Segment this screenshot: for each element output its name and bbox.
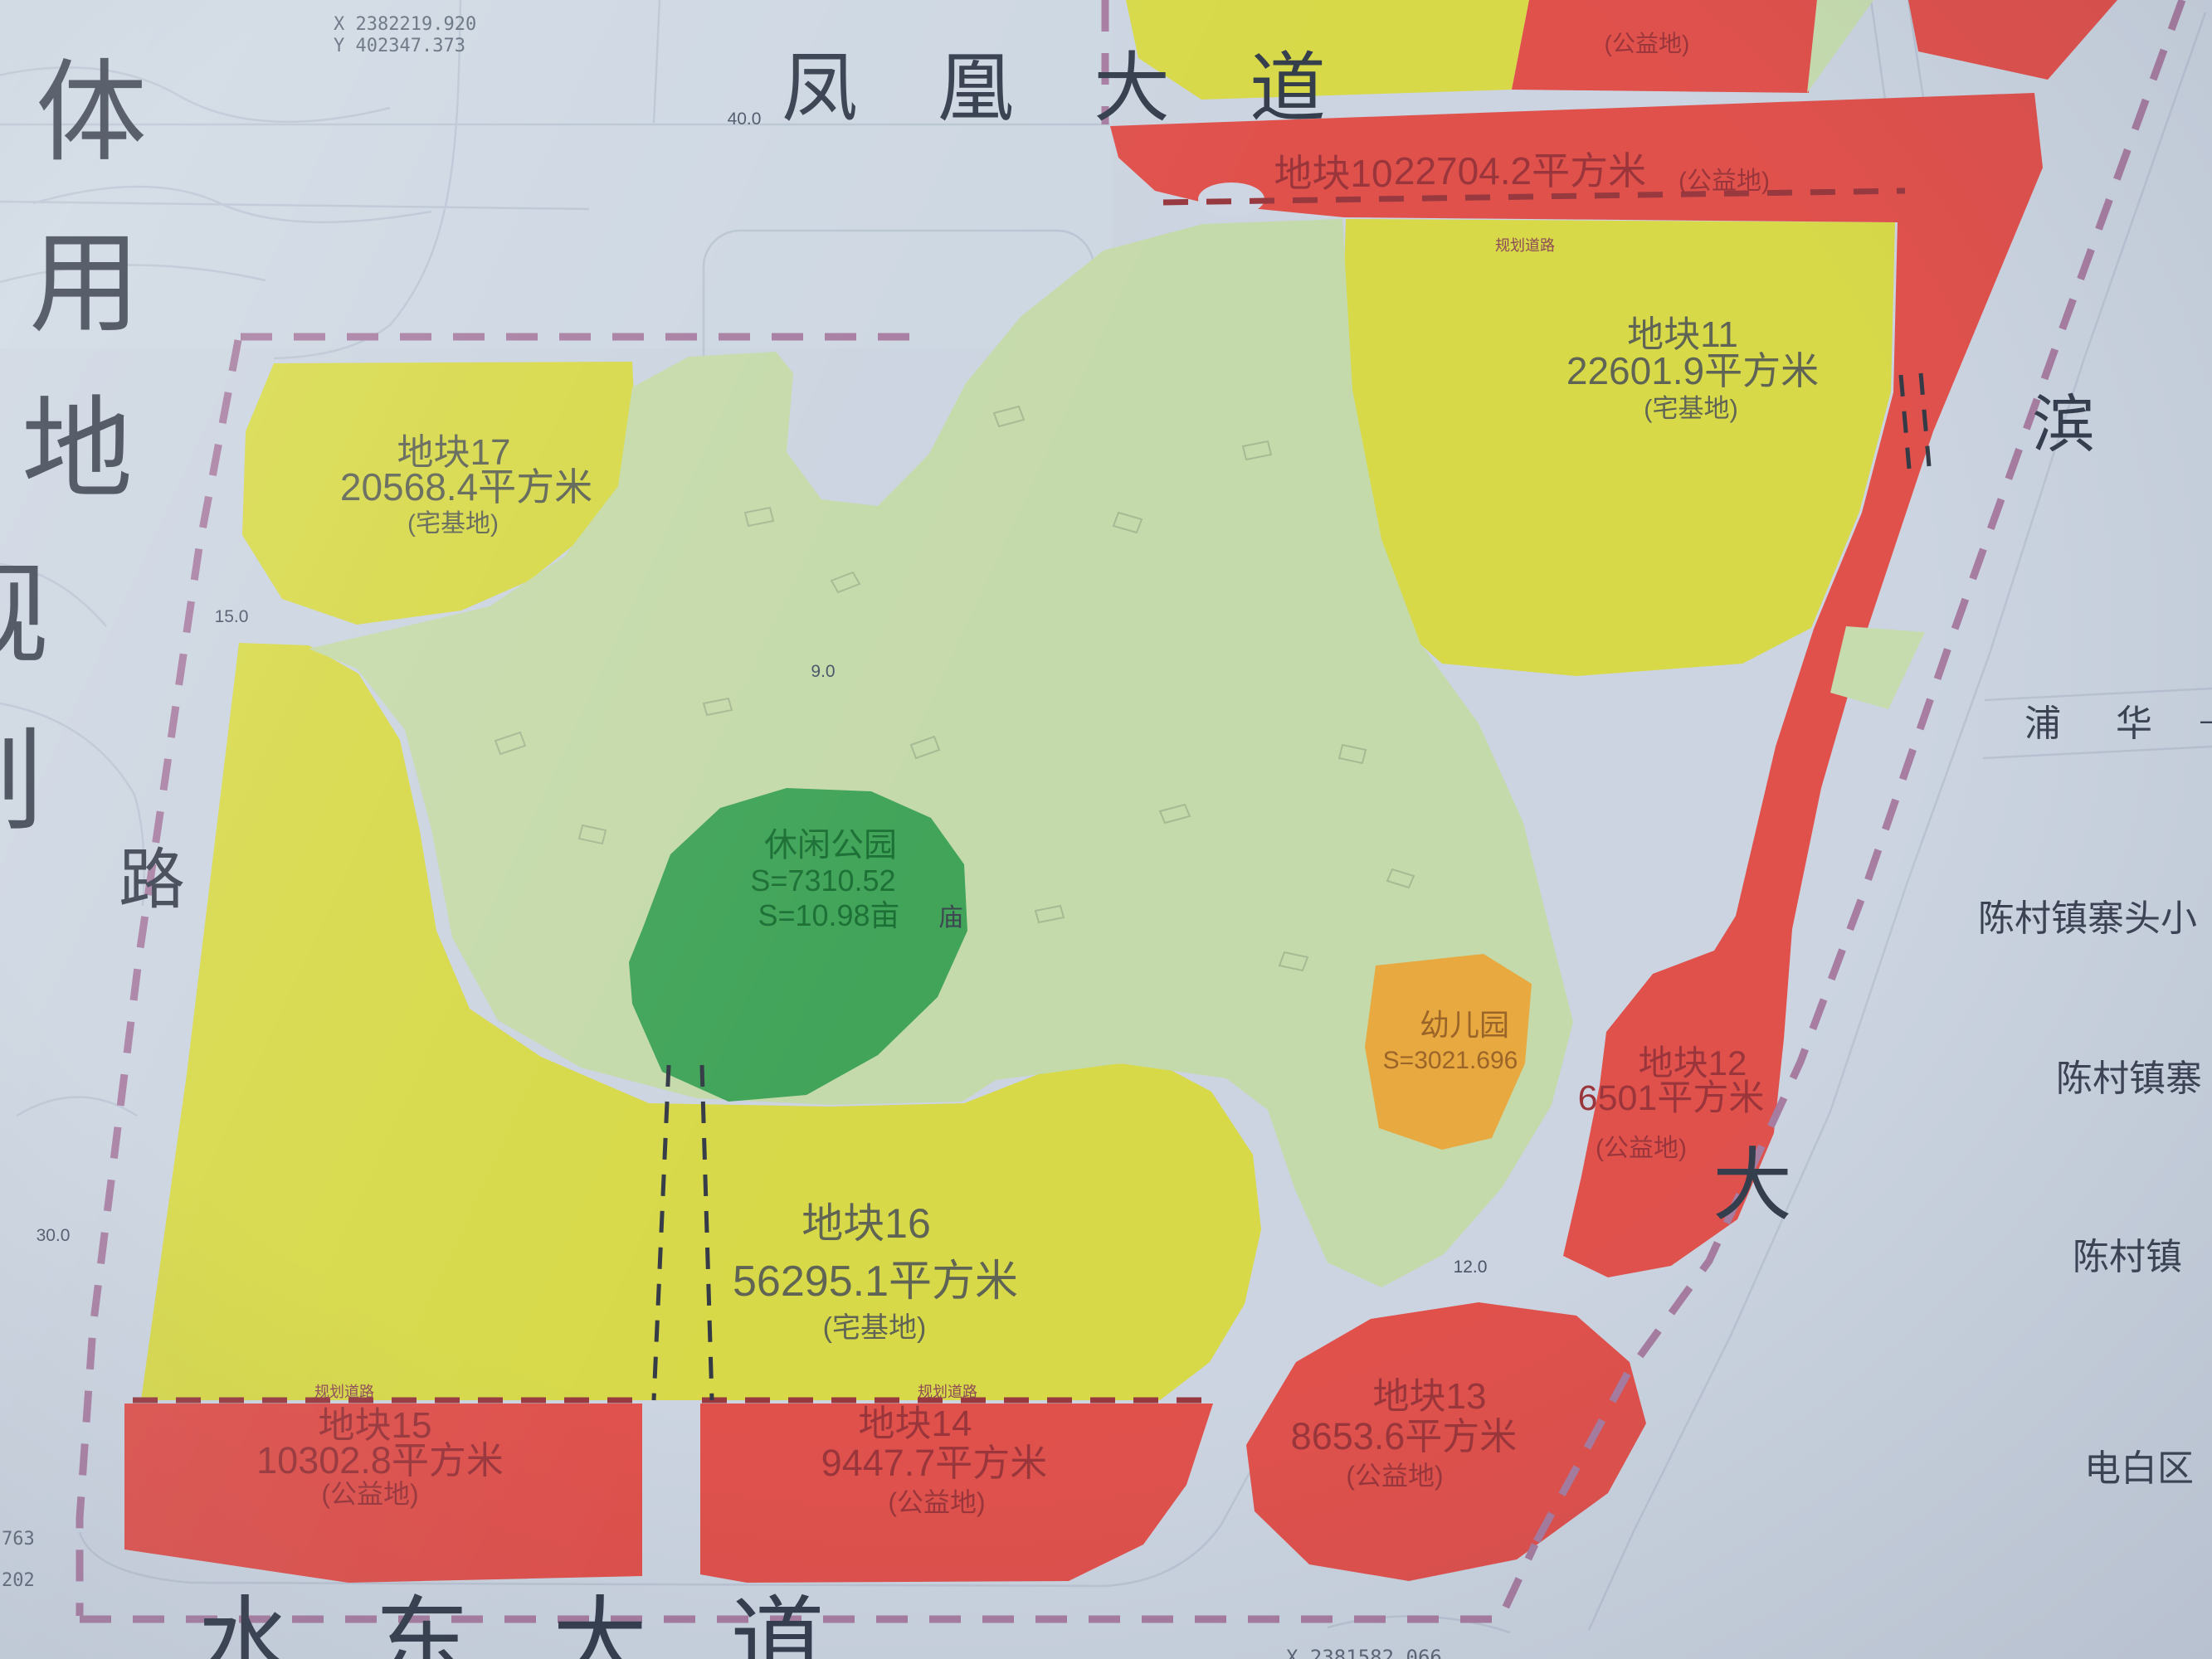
place-label: 陈村镇 [2073,1237,2182,1277]
parcel-type: (公益地) [1678,168,1770,195]
parcel-type: (公益地) [321,1479,418,1509]
title-char: 体 [36,51,147,175]
parcel-area: 10302.8平方米 [256,1439,504,1481]
planned-road-caption: 规划道路 [314,1384,374,1400]
parcel-type: (宅基地) [407,510,499,538]
park-area-m2: S=7310.52 [750,864,895,898]
parcel-type: (公益地) [1596,1135,1687,1162]
park-name: 休闲公园 [764,827,897,864]
puhua-road-char: 浦 [2024,703,2061,744]
parcel-type: (宅基地) [1644,394,1738,423]
parcel-name: 地块16 [801,1200,931,1247]
coordinate-label-bottom: X 2381582.066 [1286,1646,1442,1659]
dimension-label: 40.0 [728,109,762,129]
puhua-road-dash: — [2200,703,2212,737]
coordinate-label-x: X 2382219.920 [334,14,476,35]
title-char: 用 [29,222,140,346]
parcel-11-region [1342,219,1895,676]
parcel-area: 20568.4平方米 [340,465,592,508]
parcel-area: 6501平方米 [1578,1078,1765,1118]
coordinate-partial: 202 [2,1570,35,1591]
parcel-area: 56295.1平方米 [733,1258,1018,1306]
kindergarten-area: S=3021.696 [1383,1047,1518,1074]
parcel-area: 22704.2平方米 [1394,149,1646,192]
kindergarten-name: 幼儿园 [1420,1008,1509,1042]
parcel-area: 9447.7平方米 [821,1442,1048,1484]
dimension-label: 30.0 [37,1226,71,1245]
planning-map-photo: 体 用 地 规 划 路 凤凰大道 水东大道 滨 大 浦 华 — X 238221… [0,0,2212,1659]
dimension-label: 15.0 [215,607,249,626]
coordinate-partial: 763 [2,1529,35,1550]
parcel-type: (公益地) [888,1487,985,1517]
top-road-name: 凤凰大道 [782,46,1406,131]
park-area-mu: S=10.98亩 [758,898,899,932]
parcel-type: (宅基地) [823,1312,927,1344]
parcel-area: 8653.6平方米 [1291,1415,1518,1457]
parcel-name: 地块14 [859,1404,972,1444]
title-char: 划 [0,720,44,844]
title-char: 地 [22,388,133,512]
left-road-name-char: 路 [119,843,185,917]
temple-char: 庙 [938,904,963,932]
title-char: 规 [0,554,49,678]
land-use-map: 体 用 地 规 划 路 凤凰大道 水东大道 滨 大 浦 华 — X 238221… [0,0,2212,1659]
place-label: 陈村镇寨 [2056,1058,2202,1099]
puhua-road-char: 华 [2116,703,2152,744]
coordinate-label-y: Y 402347.373 [334,36,465,56]
bottom-road-name: 水东大道 [197,1589,908,1659]
planned-road-caption: 规划道路 [1495,237,1555,254]
planned-road-caption: 规划道路 [918,1384,977,1400]
parcel-type: (公益地) [1346,1461,1443,1491]
parcel-name: 地块13 [1373,1376,1487,1417]
dimension-label: 12.0 [1454,1258,1488,1277]
right-road-name-char: 大 [1713,1141,1792,1230]
park-label: 休闲公园 S=7310.52 S=10.98亩 [750,827,899,932]
parcel-name: 地块12 [1639,1044,1747,1082]
north-parcel-type: (公益地) [1605,31,1690,56]
parcel-area: 22601.9平方米 [1566,349,1819,392]
place-label: 电白区 [2084,1448,2194,1489]
right-road-name-char: 滨 [2032,390,2095,460]
dimension-label: 9.0 [811,662,835,681]
parcel-name: 地块10 [1274,152,1392,195]
place-label: 陈村镇寨头小 [1978,898,2197,939]
